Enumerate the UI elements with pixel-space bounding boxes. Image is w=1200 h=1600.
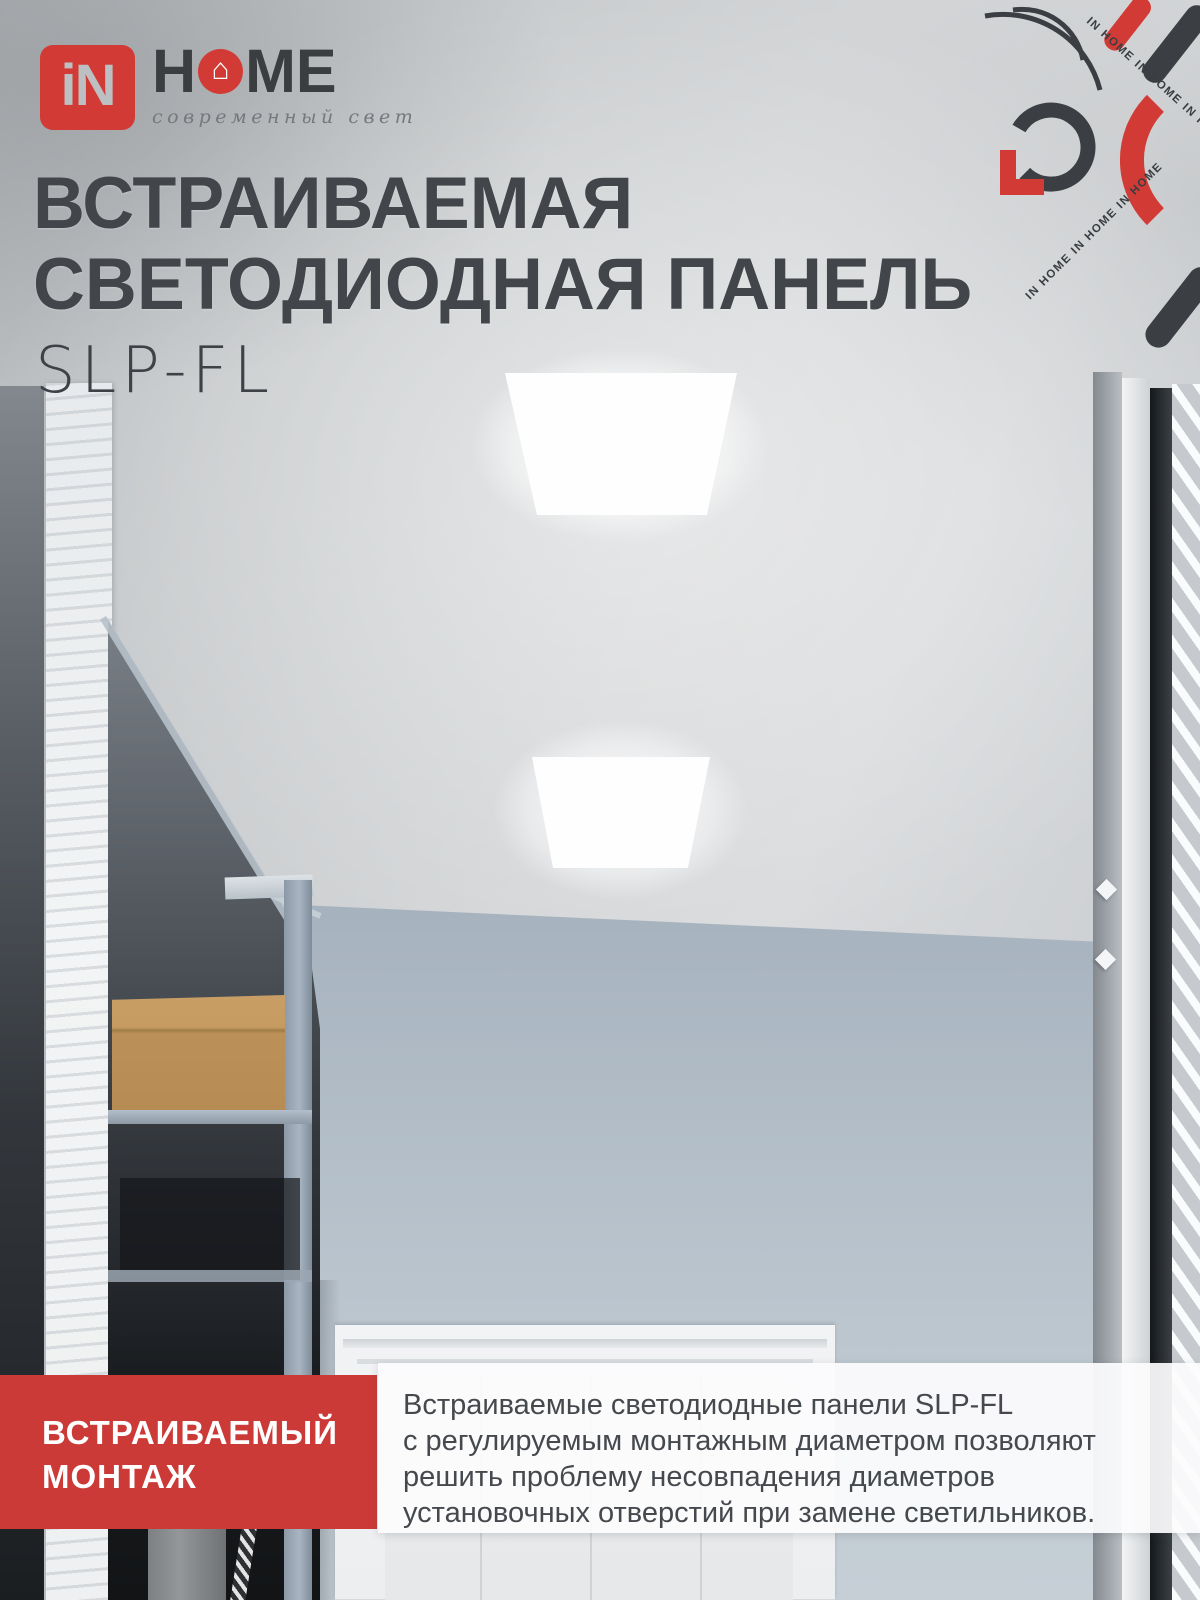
mounting-badge: ВСТРАИВАЕМЫЙ МОНТАЖ — [0, 1375, 377, 1529]
logo-mark-text: iN — [61, 52, 115, 119]
dark-bar-lower — [1140, 262, 1200, 353]
description-line: Встраиваемые светодиодные панели SLP-FL — [403, 1387, 1184, 1423]
page-title-line1: ВСТРАИВАЕМАЯ — [33, 163, 633, 244]
led-panel-2 — [532, 757, 710, 868]
closet-shelf — [108, 1270, 312, 1282]
badge-line1: ВСТРАИВАЕМЫЙ — [42, 1411, 377, 1455]
promo-banner: IN HOME IN HOME IN HOME IN HOME IN HOME … — [0, 0, 1200, 1600]
logo-mark: iN — [40, 45, 135, 130]
hanging-garment — [148, 1528, 226, 1600]
description-line: установочных отверстий при замене светил… — [403, 1495, 1184, 1531]
page-title-line2: СВЕТОДИОДНАЯ ПАНЕЛЬ — [33, 244, 972, 325]
page-title: ВСТРАИВАЕМАЯ СВЕТОДИОДНАЯ ПАНЕЛЬ — [33, 163, 972, 325]
logo-wordmark: H ⌂ ME современный свет — [152, 45, 417, 128]
house-icon: ⌂ — [212, 55, 230, 85]
model-label: SLP-FL — [35, 334, 274, 408]
broken-ring — [1019, 110, 1088, 184]
cardboard-boxes — [112, 995, 285, 1115]
brand-logo: iN H ⌂ ME современный свет — [40, 45, 417, 130]
frame-molding — [343, 1339, 827, 1348]
storage-bin — [120, 1178, 300, 1280]
big-red-arc — [1132, 103, 1155, 216]
red-corner — [1008, 150, 1044, 187]
description-line: с регулируемым монтажным диаметром позво… — [403, 1423, 1184, 1459]
wordmark-letter: H — [152, 41, 196, 102]
closet-shelf — [108, 1110, 312, 1124]
brand-tagline: современный свет — [152, 106, 417, 128]
badge-line2: МОНТАЖ — [42, 1455, 377, 1499]
home-wordmark: H ⌂ ME — [152, 45, 417, 97]
house-circle: ⌂ — [198, 49, 243, 94]
description-card: Встраиваемые светодиодные панели SLP-FL … — [378, 1363, 1200, 1533]
wordmark-letters: ME — [245, 41, 337, 102]
led-panel-1 — [505, 373, 737, 515]
description-line: решить проблему несовпадения диаметров — [403, 1459, 1184, 1495]
